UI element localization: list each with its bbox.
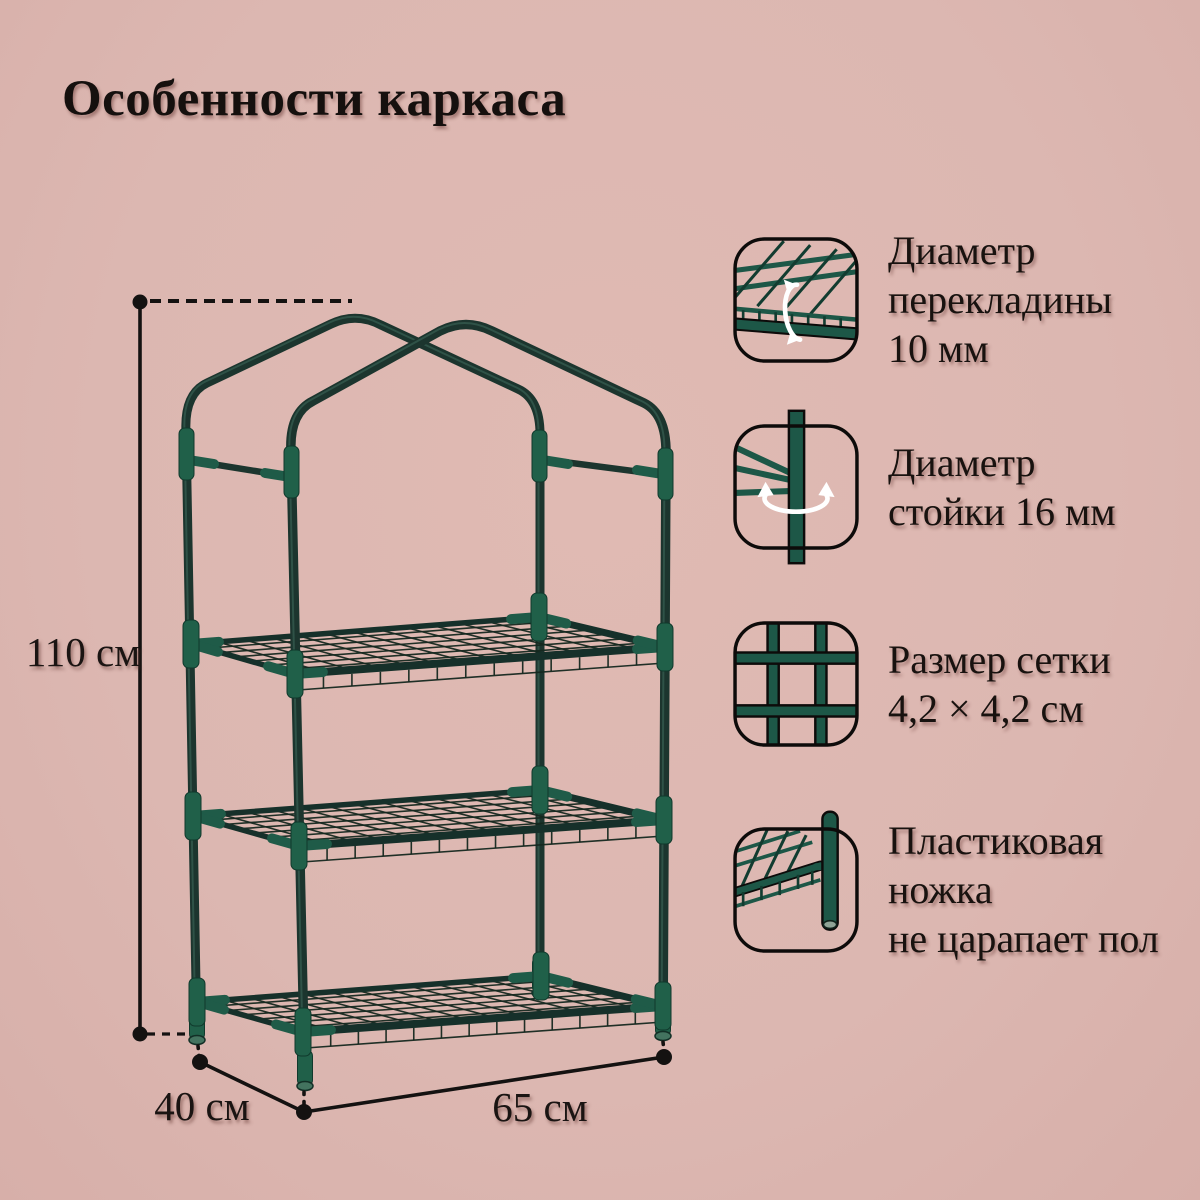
feature-text: Диаметр стойки 16 мм <box>888 438 1116 536</box>
feature-text: Размер сетки 4,2 × 4,2 см <box>888 635 1111 733</box>
frame-diagram: 110 см 40 см 65 см <box>0 0 1200 1200</box>
top-crossbars <box>187 459 664 477</box>
feature-text: Диаметр перекладины 10 мм <box>888 226 1112 373</box>
feature-line: ножка <box>888 865 1159 914</box>
crossbar-diameter-icon <box>733 237 859 363</box>
feature-line: Диаметр <box>888 438 1116 487</box>
feature-plastic-foot: Пластиковая ножка не царапает пол <box>733 816 1159 963</box>
feature-crossbar-diameter: Диаметр перекладины 10 мм <box>733 226 1112 373</box>
shelf-tier <box>193 790 664 862</box>
dimension-annotations: 110 см 40 см 65 см <box>26 295 672 1131</box>
shelf-tier <box>191 617 665 690</box>
shelf-tier <box>197 976 663 1048</box>
height-dimension-label: 110 см <box>26 629 140 675</box>
feature-line: перекладины <box>888 275 1112 324</box>
frame-back-arch <box>184 317 540 1040</box>
frame-front-arch <box>289 323 666 1086</box>
feature-line: не царапает пол <box>888 914 1159 963</box>
depth-dimension-label: 40 см <box>154 1083 249 1129</box>
feature-line: стойки 16 мм <box>888 487 1116 536</box>
plastic-foot-icon <box>733 827 859 953</box>
feature-post-diameter: Диаметр стойки 16 мм <box>733 424 1116 550</box>
feature-line: 4,2 × 4,2 см <box>888 684 1111 733</box>
width-dimension-label: 65 см <box>492 1084 587 1130</box>
feature-line: Пластиковая <box>888 816 1159 865</box>
mesh-size-icon <box>733 621 859 747</box>
foot-cap <box>823 920 836 928</box>
feature-text: Пластиковая ножка не царапает пол <box>888 816 1159 963</box>
feature-mesh-size: Размер сетки 4,2 × 4,2 см <box>733 621 1111 747</box>
product-infographic: Особенности каркаса <box>0 0 1200 1200</box>
feature-line: Диаметр <box>888 226 1112 275</box>
feature-line: Размер сетки <box>888 635 1111 684</box>
feature-line: 10 мм <box>888 324 1112 373</box>
post-diameter-icon <box>733 424 859 550</box>
